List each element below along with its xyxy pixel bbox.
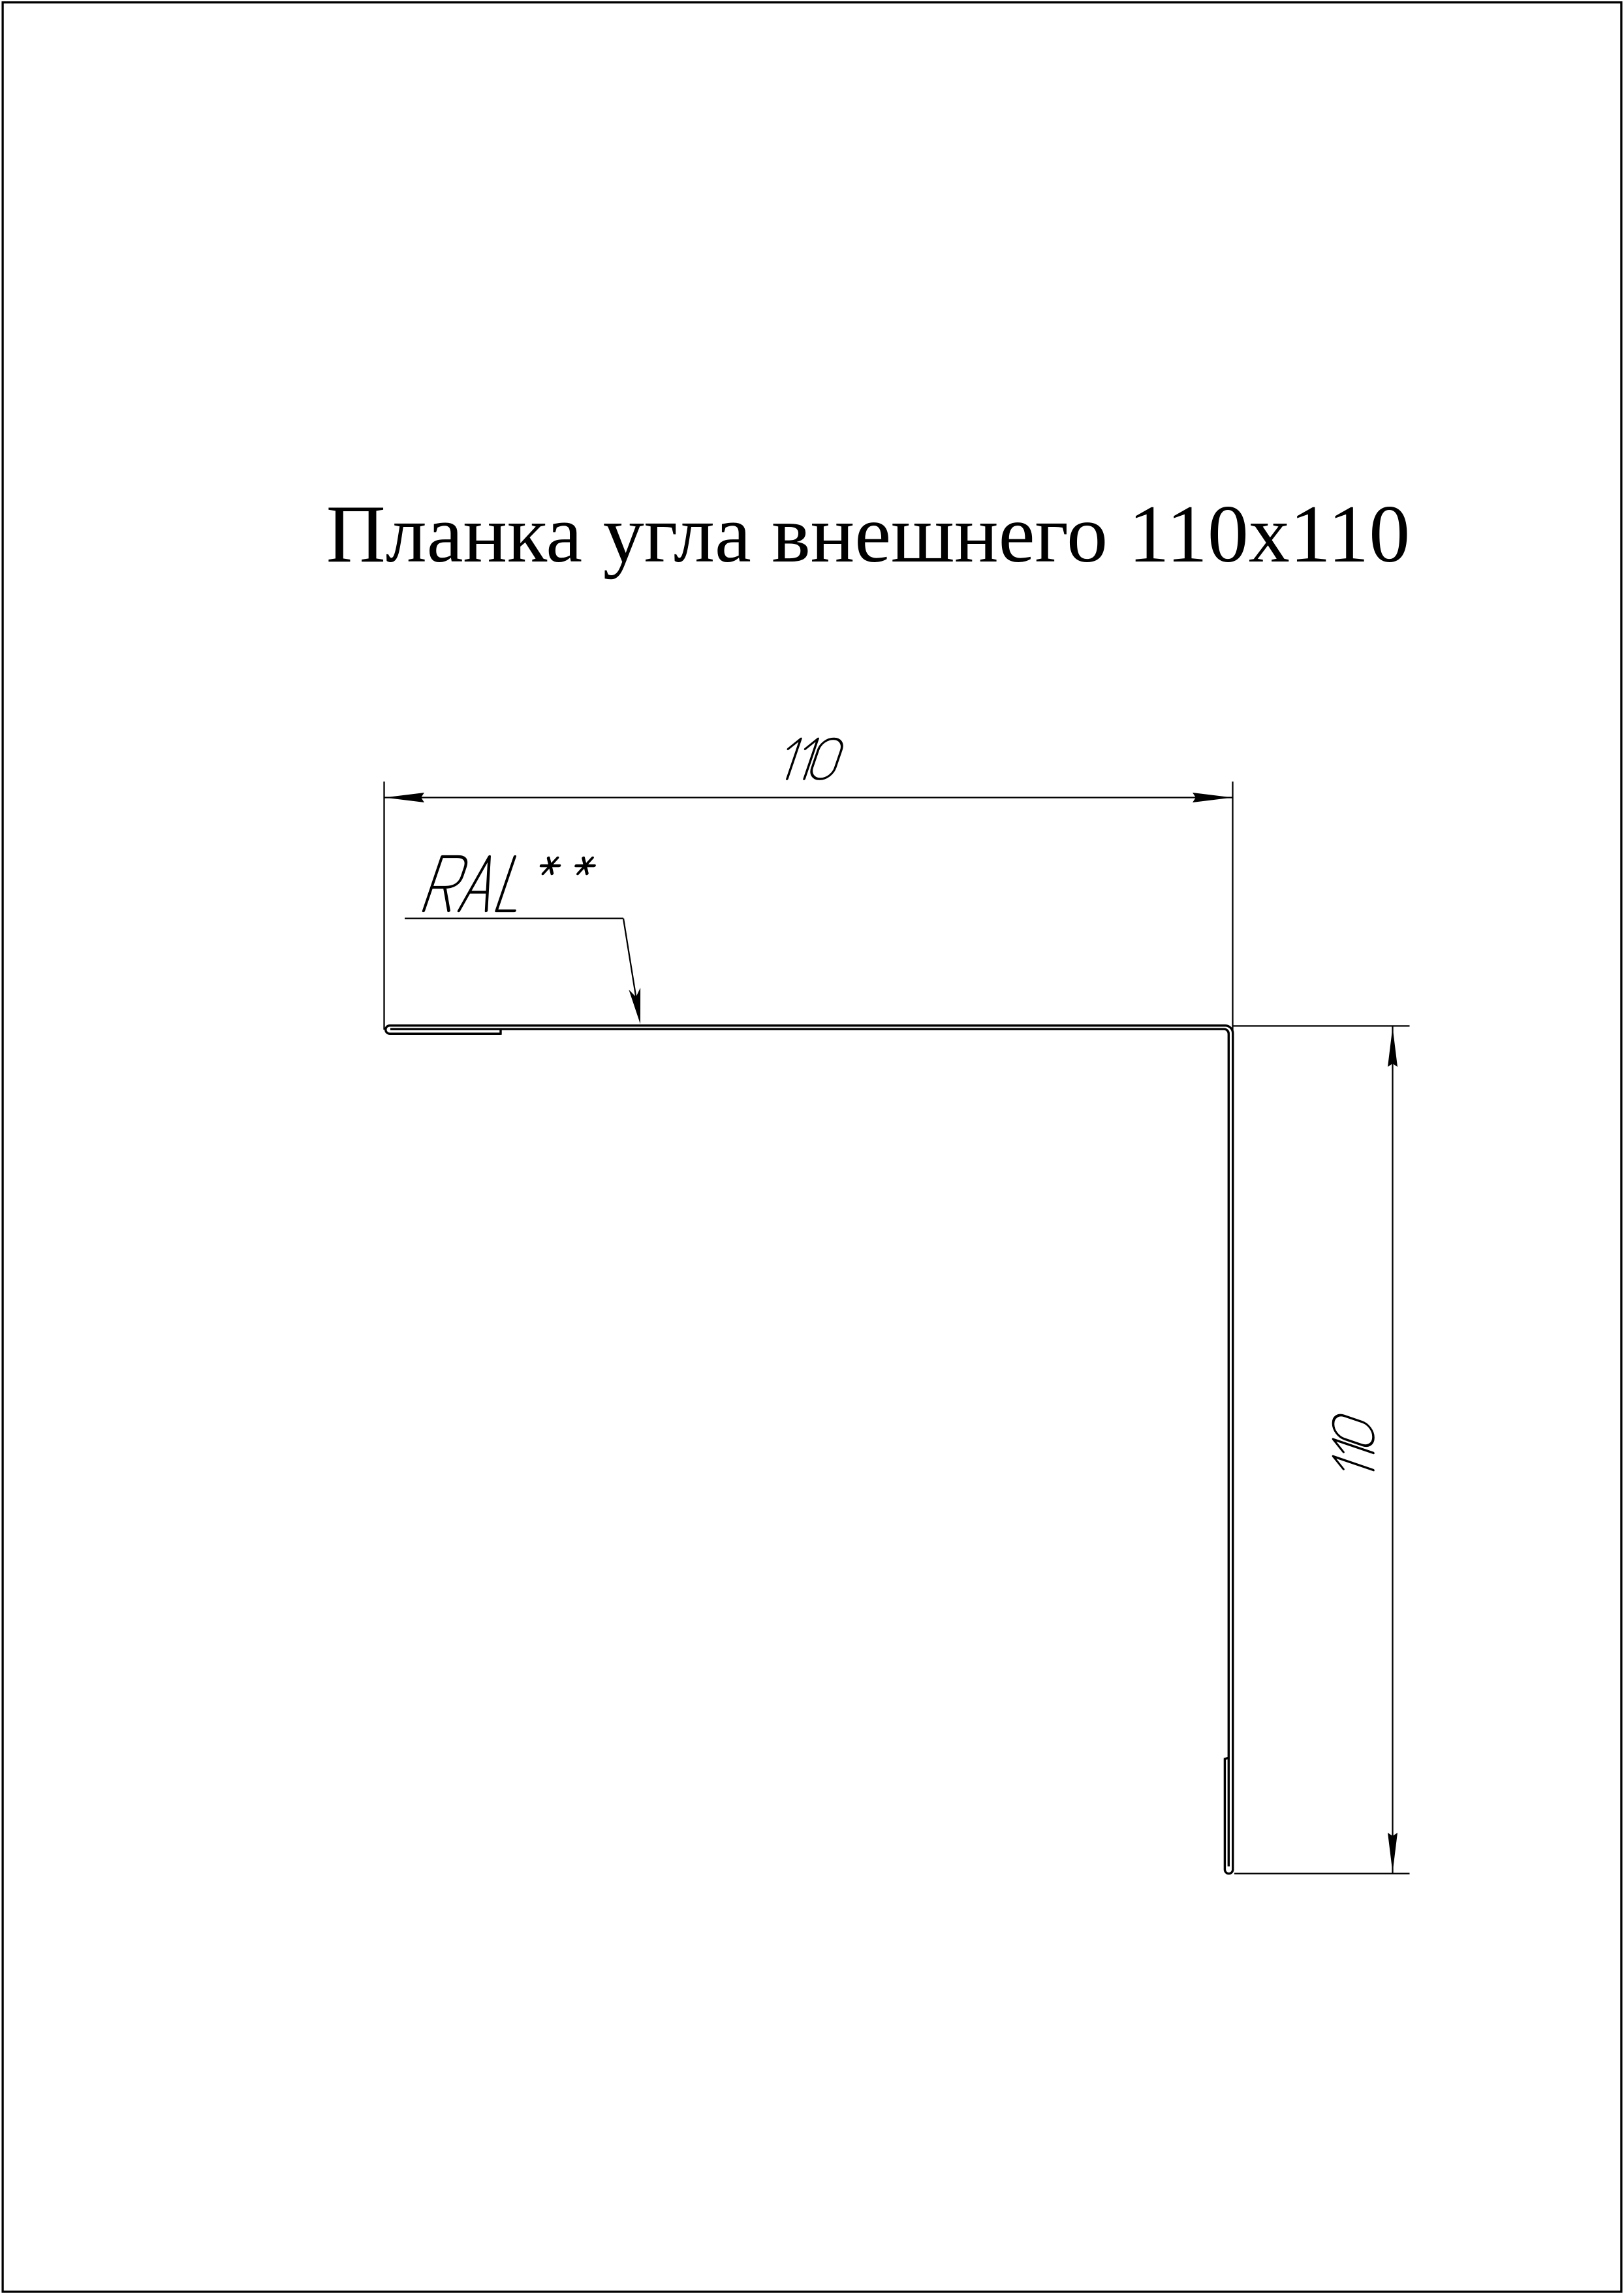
svg-text:Планка угла внешнего 110х110: Планка угла внешнего 110х110 (326, 489, 1410, 580)
